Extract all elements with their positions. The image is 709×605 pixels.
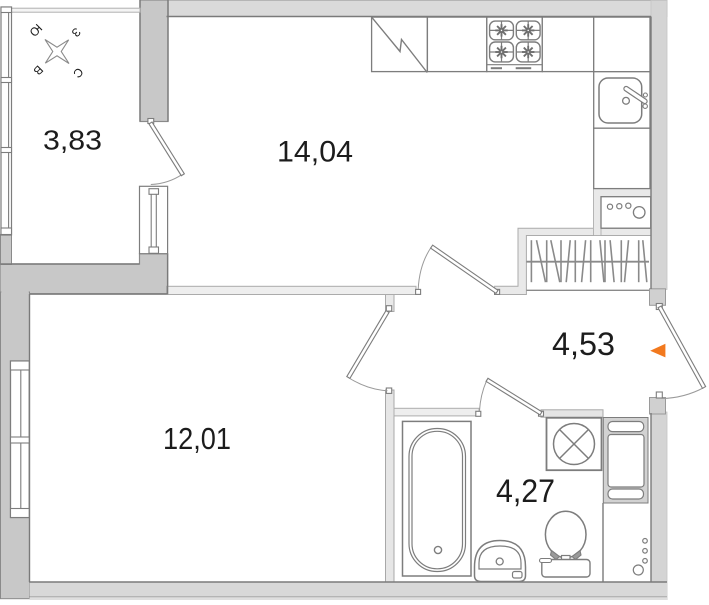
svg-text:14,04: 14,04 bbox=[277, 135, 353, 168]
svg-text:12,01: 12,01 bbox=[163, 421, 231, 456]
svg-text:4,27: 4,27 bbox=[496, 473, 555, 509]
svg-text:3,83: 3,83 bbox=[43, 124, 102, 155]
svg-text:4,53: 4,53 bbox=[552, 326, 615, 362]
